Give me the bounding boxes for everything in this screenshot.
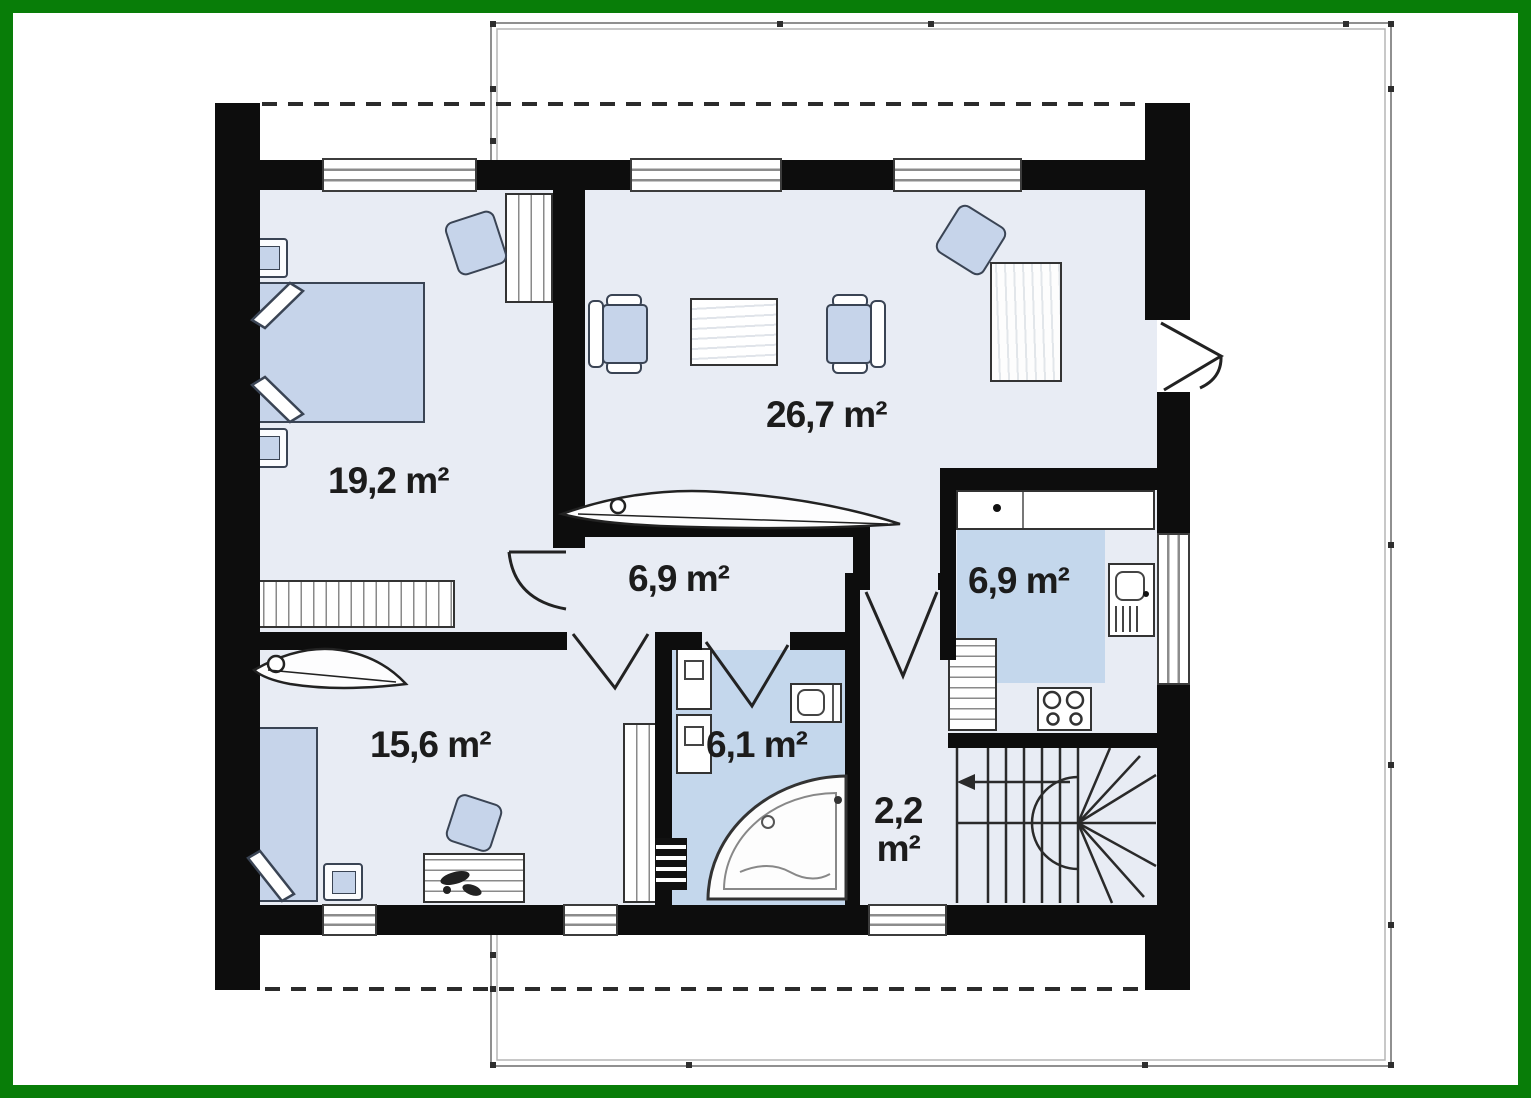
area-label-vestibule-unit: m² xyxy=(874,830,922,868)
bed-pillows xyxy=(248,283,303,901)
window-bedroom2-bottom-1 xyxy=(322,904,377,936)
door-bedroom1 xyxy=(509,552,566,609)
window-bedroom2-bottom-2 xyxy=(563,904,618,936)
area-label-bedroom-second: 15,6 m² xyxy=(370,726,491,764)
desk-items xyxy=(439,868,483,898)
floor-plan: 19,2 m² 26,7 m² 6,9 m² 6,9 m² 15,6 m² 6,… xyxy=(0,0,1531,1098)
door-bedroom2 xyxy=(573,634,648,688)
sink-rack xyxy=(1116,606,1137,632)
entrance-door xyxy=(1161,323,1221,390)
door-bathroom xyxy=(706,642,788,706)
area-label-vestibule-value: 2,2 xyxy=(874,792,922,830)
stair-direction-arrow xyxy=(957,774,1070,790)
stove-burners xyxy=(1044,692,1083,725)
window-vestibule-bottom xyxy=(868,904,947,936)
staircase xyxy=(957,748,1156,903)
area-label-living-room: 26,7 m² xyxy=(766,396,887,434)
window-living-top xyxy=(630,158,782,192)
area-label-bathroom: 6,1 m² xyxy=(706,726,807,764)
area-label-vestibule: 2,2 m² xyxy=(874,792,922,867)
area-label-hall: 6,9 m² xyxy=(628,560,729,598)
stair-balustrade xyxy=(562,491,900,528)
window-kitchen-right xyxy=(1157,533,1190,685)
area-label-kitchen: 6,9 m² xyxy=(968,562,1069,600)
door-vestibule xyxy=(866,592,937,676)
window-bedroom1-top xyxy=(322,158,477,192)
roof-projection-dashed-lines xyxy=(262,104,1143,989)
bathtub xyxy=(708,776,846,899)
bedroom2-shelf xyxy=(254,649,406,688)
area-label-bedroom-main: 19,2 m² xyxy=(328,462,449,500)
window-dining-top xyxy=(893,158,1022,192)
